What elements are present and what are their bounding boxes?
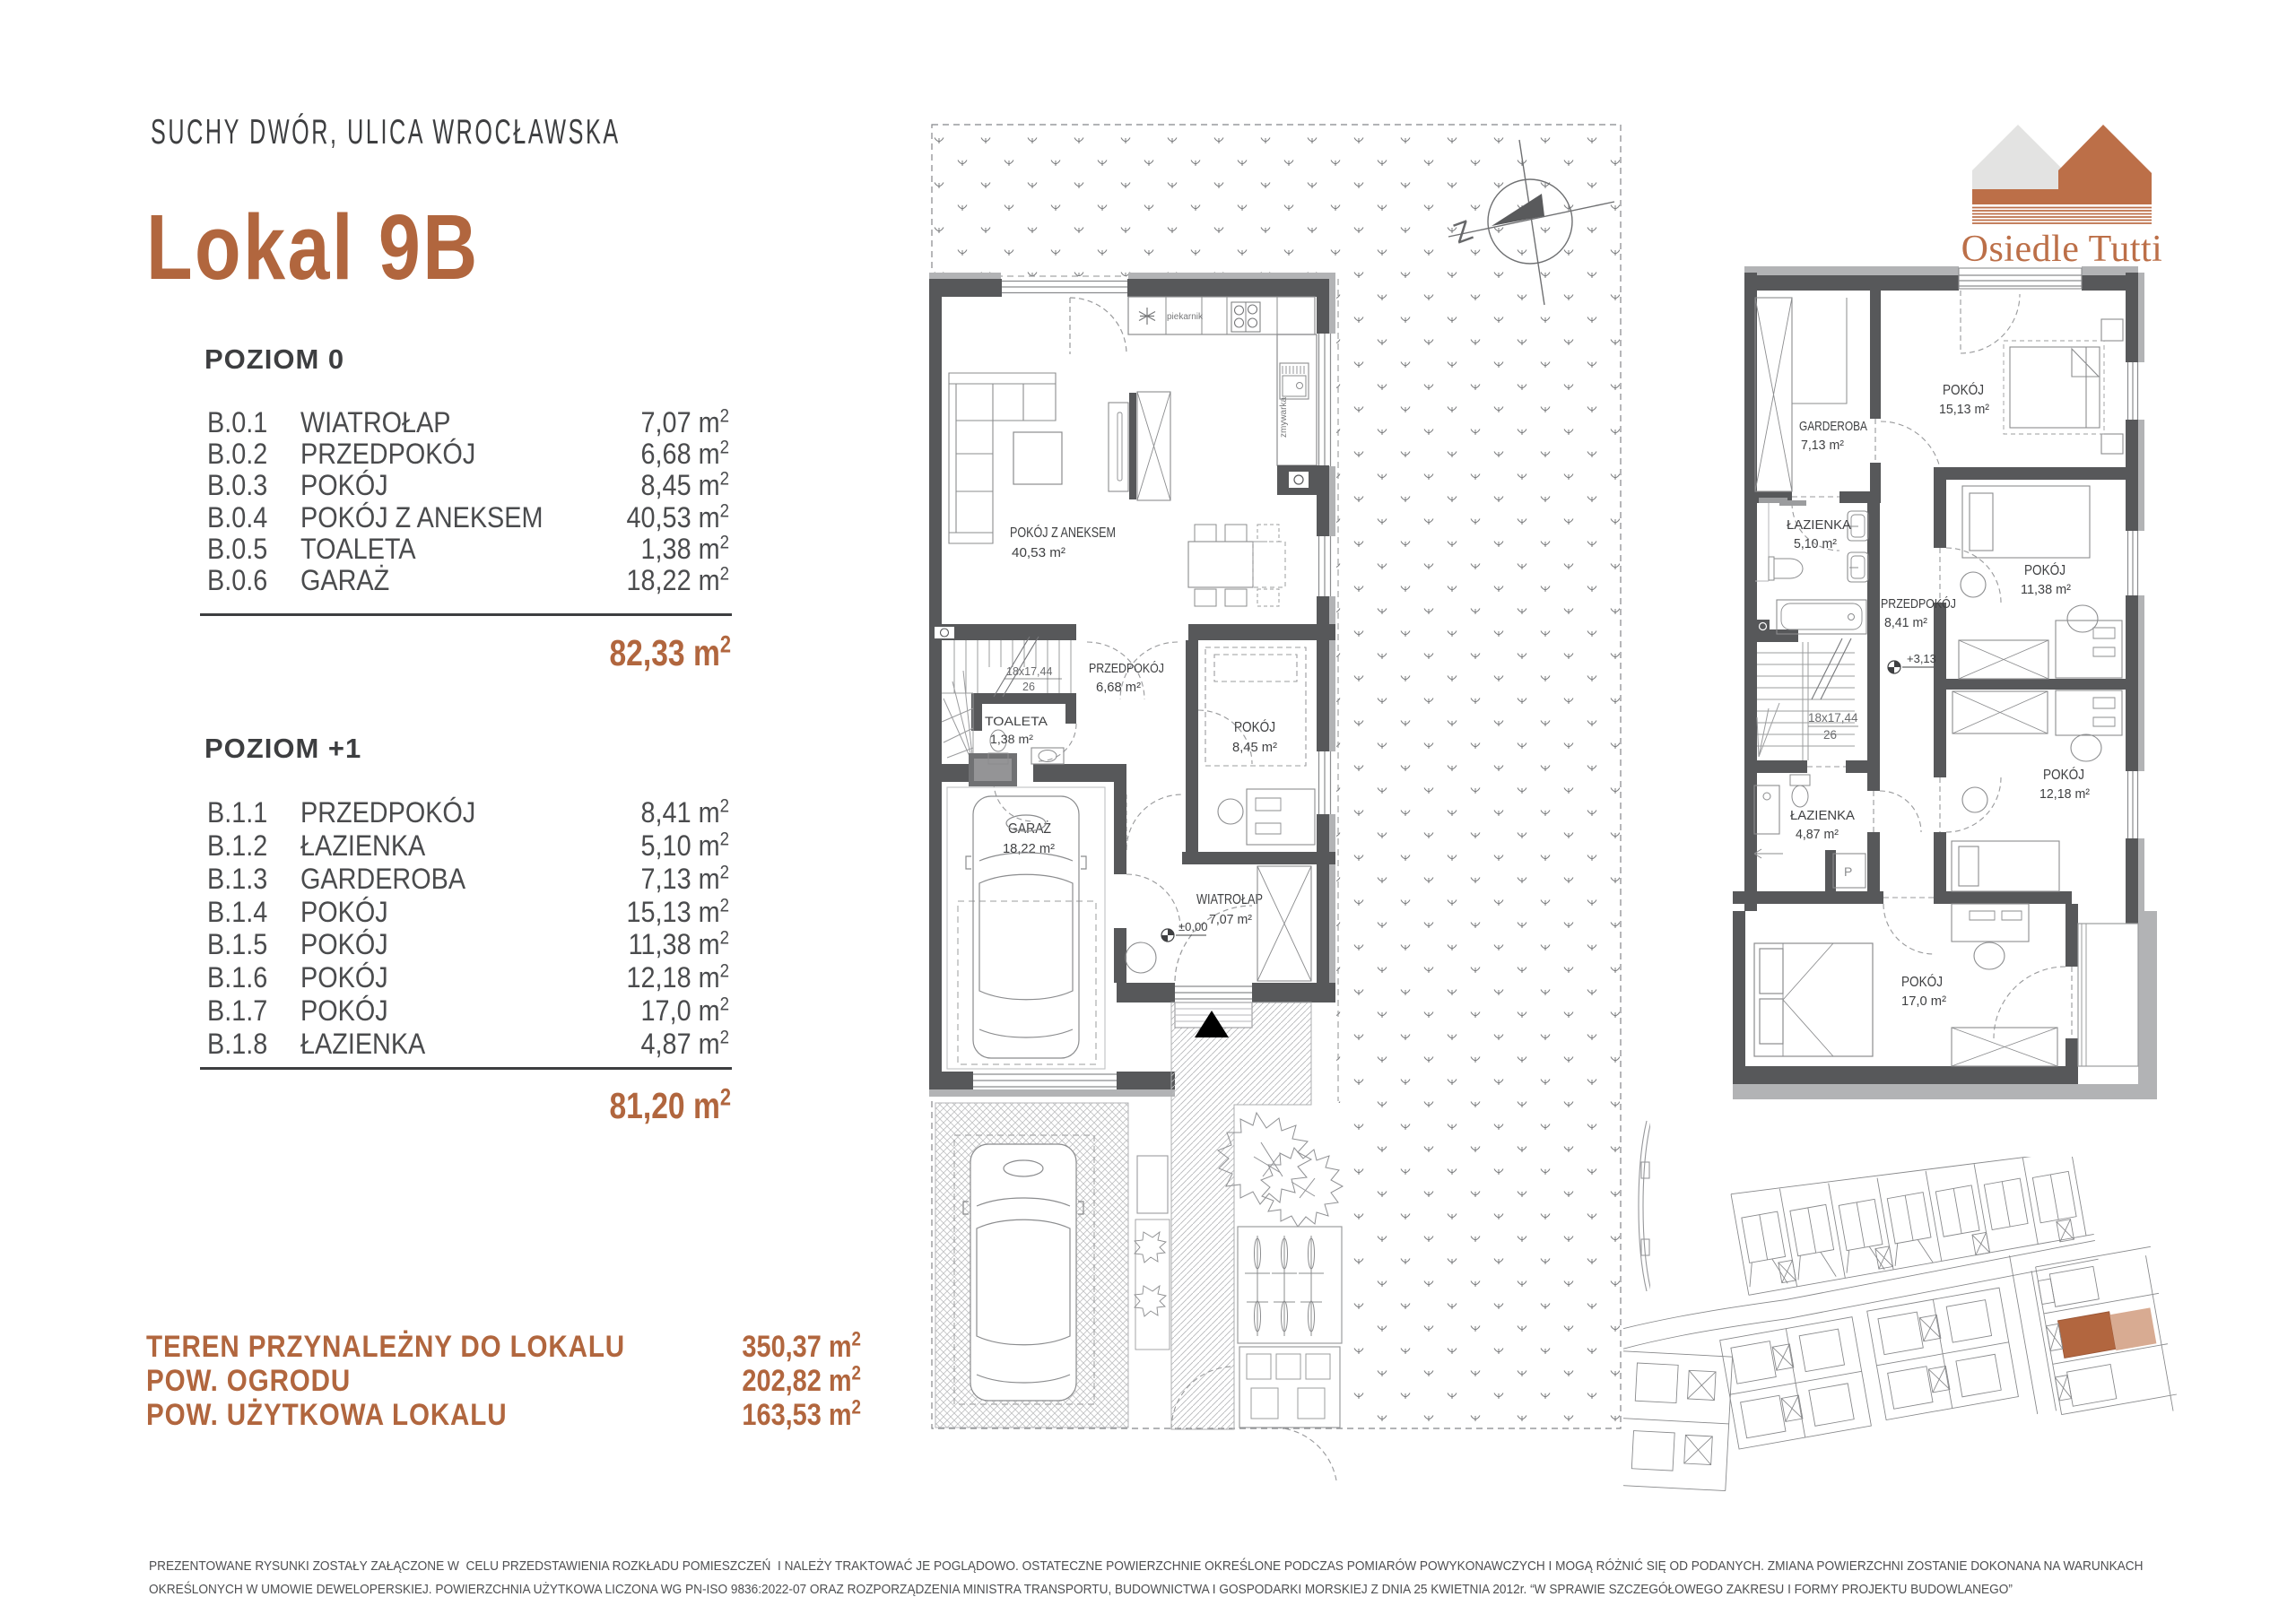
- svg-text:12,18 m²: 12,18 m²: [2039, 786, 2090, 802]
- svg-text:TOALETA: TOALETA: [985, 714, 1048, 728]
- svg-text:15,13 m²: 15,13 m²: [1939, 402, 1989, 417]
- svg-text:40,53 m²: 40,53 m²: [1012, 545, 1065, 560]
- svg-text:PRZEDPOKÓJ: PRZEDPOKÓJ: [1089, 661, 1164, 676]
- svg-text:18x17,44: 18x17,44: [1006, 665, 1052, 678]
- svg-text:WIATROŁAP: WIATROŁAP: [1196, 892, 1263, 907]
- svg-text:GARAŻ: GARAŻ: [1008, 820, 1051, 837]
- svg-text:POKÓJ: POKÓJ: [2043, 766, 2084, 783]
- svg-text:POKÓJ: POKÓJ: [1901, 973, 1943, 990]
- svg-text:P: P: [1844, 864, 1852, 879]
- svg-text:POKÓJ: POKÓJ: [1943, 381, 1984, 398]
- svg-text:18x17,44: 18x17,44: [1808, 711, 1858, 725]
- svg-text:POKÓJ: POKÓJ: [2024, 561, 2066, 578]
- svg-text:4,87 m²: 4,87 m²: [1796, 828, 1839, 842]
- svg-text:8,45 m²: 8,45 m²: [1232, 741, 1277, 755]
- svg-text:PRZEDPOKÓJ: PRZEDPOKÓJ: [1881, 596, 1956, 612]
- svg-text:+3,13: +3,13: [1907, 652, 1936, 665]
- svg-text:GARDEROBA: GARDEROBA: [1799, 419, 1867, 434]
- svg-text:26: 26: [1823, 728, 1837, 742]
- svg-text:7,07 m²: 7,07 m²: [1209, 913, 1252, 927]
- svg-text:±0,00: ±0,00: [1178, 920, 1207, 933]
- svg-text:11,38 m²: 11,38 m²: [2021, 582, 2071, 597]
- svg-text:piekarnik: piekarnik: [1167, 312, 1204, 322]
- svg-text:17,0 m²: 17,0 m²: [1901, 994, 1946, 1009]
- svg-text:ŁAZIENKA: ŁAZIENKA: [1790, 808, 1855, 823]
- svg-text:6,68 m²: 6,68 m²: [1096, 681, 1141, 695]
- svg-text:7,13 m²: 7,13 m²: [1801, 438, 1844, 453]
- svg-text:ŁAZIENKA: ŁAZIENKA: [1787, 517, 1851, 533]
- svg-text:5,10 m²: 5,10 m²: [1794, 537, 1837, 551]
- svg-text:26: 26: [1022, 681, 1035, 693]
- svg-text:8,41 m²: 8,41 m²: [1884, 616, 1927, 630]
- svg-text:Osiedle Tutti: Osiedle Tutti: [1961, 229, 2163, 270]
- svg-text:POKÓJ: POKÓJ: [1234, 720, 1275, 735]
- svg-text:zmywarka: zmywarka: [1279, 397, 1289, 438]
- svg-text:1,38 m²: 1,38 m²: [990, 733, 1034, 746]
- svg-text:POKÓJ Z ANEKSEM: POKÓJ Z ANEKSEM: [1010, 524, 1116, 541]
